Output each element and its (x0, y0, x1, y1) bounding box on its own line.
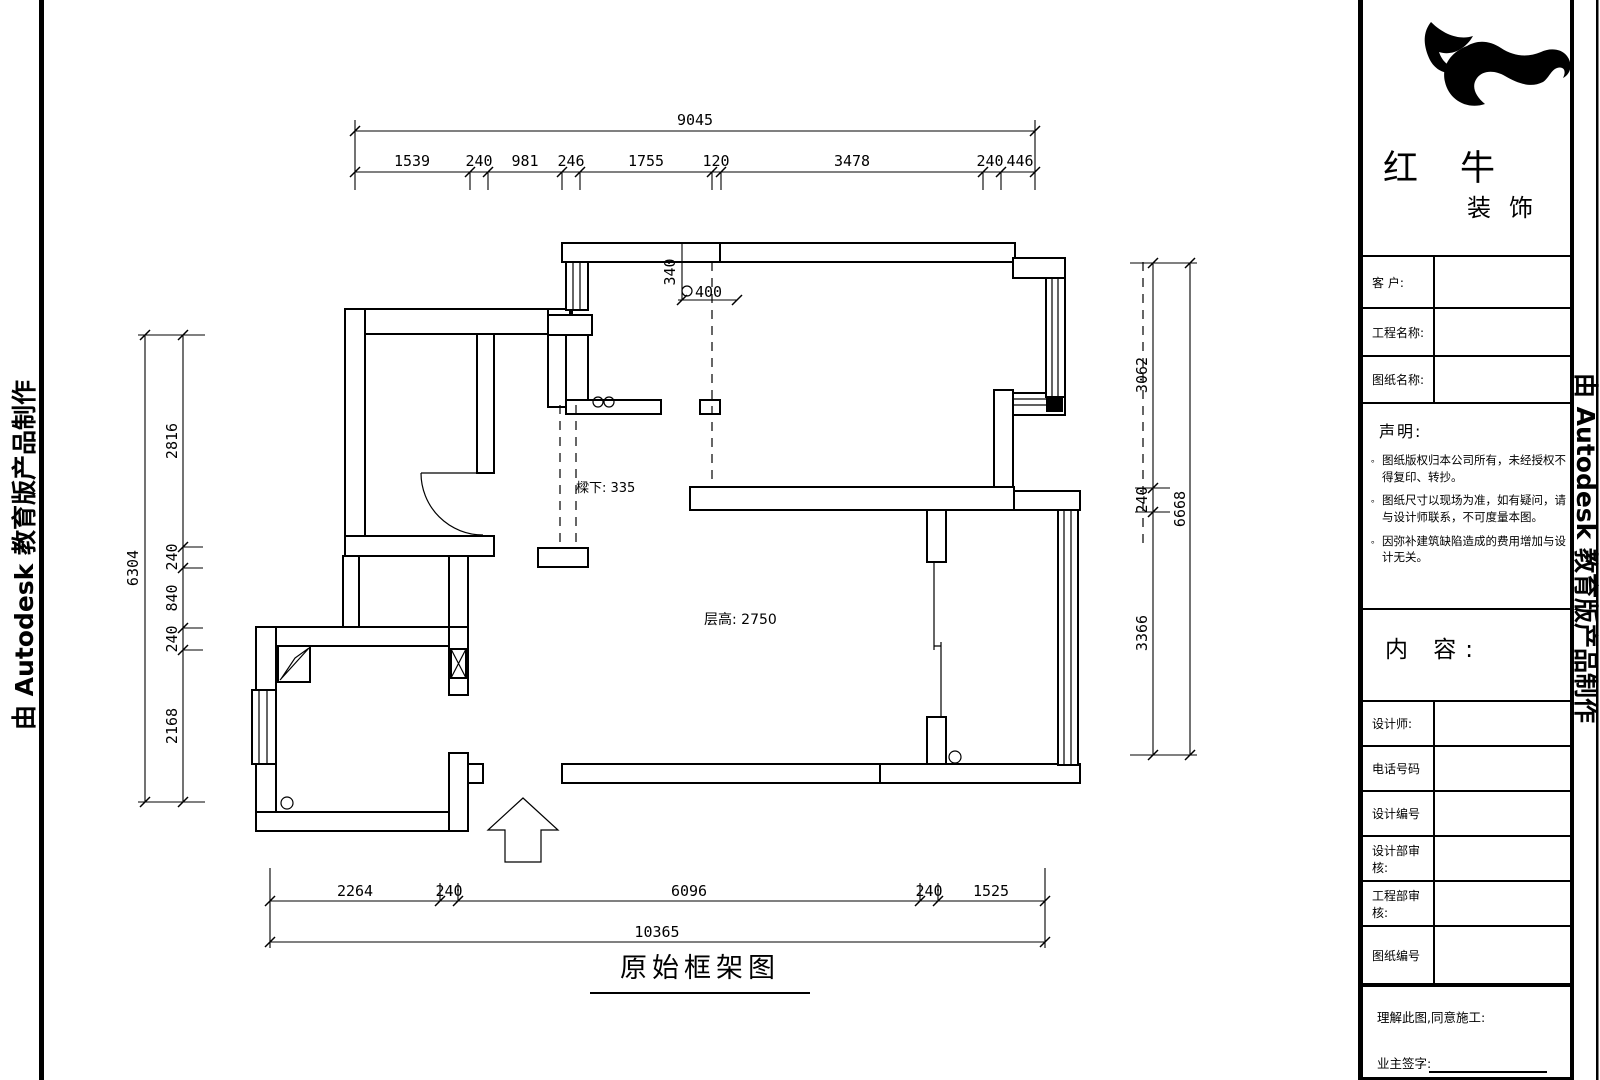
dim-total-label: 9045 (677, 111, 713, 129)
field-value (1435, 927, 1570, 983)
statement-item: 。 图纸尺寸以现场为准，如有疑问，请与设计师联系，不可度量本图。 (1371, 492, 1566, 525)
door-swing-icon (421, 473, 483, 535)
dim-label: 400 (695, 283, 722, 301)
dim-label: 340 (661, 258, 679, 285)
dim-bottom: 10365 2264 240 6096 240 1525 (265, 868, 1050, 948)
dim-label: 240 (435, 882, 462, 900)
walls (256, 243, 1080, 831)
field-value (1435, 837, 1570, 880)
dim-label: 2168 (163, 708, 181, 744)
statement-text: 因弥补建筑缺陷造成的费用增加与设计无关。 (1382, 533, 1566, 566)
dim-right: 6668 3062 240 3366 (1130, 258, 1197, 760)
field-value (1435, 702, 1570, 745)
field-row-customer: 客 户: (1363, 255, 1570, 307)
dim-label: 6096 (671, 882, 707, 900)
niche-circle-icon (682, 286, 692, 296)
cad-floorplan-page: { "page": { "left_edge_text": "由 Autodes… (0, 0, 1600, 1080)
field-value (1435, 257, 1570, 307)
windows (252, 262, 1078, 765)
field-value (1435, 747, 1570, 790)
dim-label: 240 (465, 152, 492, 170)
dim-label: 240 (163, 543, 181, 570)
statement-bullet: 。 (1371, 535, 1380, 566)
dim-label: 2264 (337, 882, 373, 900)
field-value (1435, 792, 1570, 835)
statement-heading: 声明: (1379, 418, 1570, 442)
field-row-design-number: 设计编号 (1363, 790, 1570, 835)
field-label: 电话号码 (1363, 747, 1435, 790)
company-name: 红牛 (1383, 140, 1537, 191)
dim-top: 9045 1539 240 981 246 1755 120 3478 240 … (350, 111, 1040, 190)
dim-label: 3366 (1133, 615, 1151, 651)
vent-shaft-icon (451, 649, 466, 678)
dim-label: 3062 (1133, 357, 1151, 393)
field-row-engineering-review: 工程部审核: (1363, 880, 1570, 925)
drawing-title-text: 原始框架图 (590, 946, 810, 994)
drawing-title: 原始框架图 (540, 946, 860, 994)
field-label: 客 户: (1363, 257, 1435, 307)
statement-text: 图纸版权归本公司所有，未经授权不得复印、转抄。 (1382, 452, 1566, 485)
owner-signature-line (1429, 1071, 1547, 1073)
dim-label: 3478 (834, 152, 870, 170)
right-room-window-icon (1058, 510, 1078, 765)
dim-label: 246 (557, 152, 584, 170)
statement-section: 声明: 。 图纸版权归本公司所有，未经授权不得复印、转抄。 。 图纸尺寸以现场为… (1363, 402, 1570, 608)
dim-total-label: 10365 (634, 923, 679, 941)
field-label: 图纸名称: (1363, 357, 1435, 402)
dim-label: 1539 (394, 152, 430, 170)
field-label: 工程名称: (1363, 309, 1435, 355)
field-row-project-name: 工程名称: (1363, 307, 1570, 355)
field-row-phone: 电话号码 (1363, 745, 1570, 790)
bay-column (1046, 396, 1063, 412)
agreement-text: 理解此图,同意施工: (1377, 1007, 1485, 1026)
kitchen-window-icon (252, 690, 276, 764)
sliding-opening-icon (934, 562, 941, 717)
bay-window-icon (1014, 278, 1065, 412)
dim-total-label: 6668 (1171, 491, 1189, 527)
bull-logo-icon (1371, 12, 1571, 152)
dim-label: 981 (511, 152, 538, 170)
beam-height-label: 樑下: 335 (576, 481, 635, 496)
content-section: 内 容: (1363, 608, 1570, 700)
drain-circle-icon (281, 797, 293, 809)
dim-label: 2816 (163, 423, 181, 459)
statement-bullet: 。 (1371, 454, 1380, 485)
field-label: 设计部审核: (1363, 837, 1435, 880)
company-logo: 红牛 装饰 (1363, 0, 1570, 255)
company-suffix: 装饰 (1467, 188, 1551, 223)
statement-item: 。 因弥补建筑缺陷造成的费用增加与设计无关。 (1371, 533, 1566, 566)
dim-label: 240 (976, 152, 1003, 170)
field-value (1435, 309, 1570, 355)
dim-total-label: 6304 (124, 550, 142, 586)
owner-sign-label: 业主签字: (1377, 1053, 1431, 1072)
content-heading: 内 容: (1385, 630, 1570, 664)
field-label: 设计编号 (1363, 792, 1435, 835)
dim-left: 6304 2816 240 840 240 2168 (124, 330, 205, 807)
autodesk-education-notice-left: 由 Autodesk 教育版产品制作 (5, 380, 41, 730)
statement-text: 图纸尺寸以现场为准，如有疑问，请与设计师联系，不可度量本图。 (1382, 492, 1566, 525)
dim-label: 1525 (973, 882, 1009, 900)
ceiling-height-label: 层高: 2750 (704, 611, 777, 628)
field-row-drawing-name: 图纸名称: (1363, 355, 1570, 402)
field-row-designer: 设计师: (1363, 700, 1570, 745)
signature-section: 理解此图,同意施工: 业主签字: (1363, 983, 1570, 1080)
dim-label: 240 (163, 625, 181, 652)
fixtures (278, 397, 961, 809)
flue-icon (278, 646, 310, 682)
dim-label: 840 (163, 584, 181, 611)
title-block: 红牛 装饰 客 户: 工程名称: 图纸名称: 声明: 。 图纸版权归本公司所有，… (1358, 0, 1574, 1080)
field-row-drawing-number: 图纸编号 (1363, 925, 1570, 983)
field-label: 设计师: (1363, 702, 1435, 745)
dim-label: 1755 (628, 152, 664, 170)
dim-label: 446 (1006, 152, 1033, 170)
dim-label: 240 (1133, 486, 1151, 513)
field-value (1435, 357, 1570, 402)
field-row-design-review: 设计部审核: (1363, 835, 1570, 880)
field-label: 图纸编号 (1363, 927, 1435, 983)
drain-circle-icon (949, 751, 961, 763)
dim-label: 240 (915, 882, 942, 900)
field-value (1435, 882, 1570, 925)
statement-bullet: 。 (1371, 494, 1380, 525)
statement-item: 。 图纸版权归本公司所有，未经授权不得复印、转抄。 (1371, 452, 1566, 485)
field-label: 工程部审核: (1363, 882, 1435, 925)
entrance-arrow-icon (488, 798, 558, 862)
bathroom-window-icon (566, 262, 588, 310)
dim-label: 120 (702, 152, 729, 170)
